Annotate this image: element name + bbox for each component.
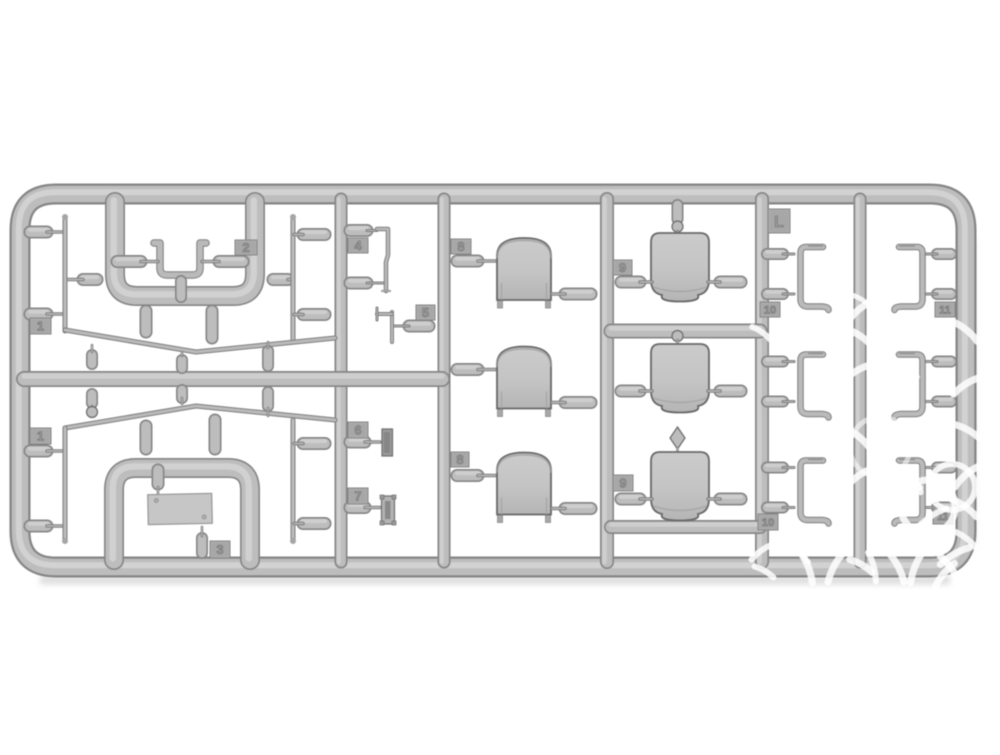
svg-text:10: 10 bbox=[764, 304, 776, 316]
svg-text:1: 1 bbox=[37, 429, 44, 444]
svg-text:8: 8 bbox=[456, 452, 463, 467]
svg-text:1: 1 bbox=[37, 319, 44, 334]
svg-text:8: 8 bbox=[457, 239, 464, 254]
svg-text:4: 4 bbox=[354, 238, 362, 253]
svg-text:9: 9 bbox=[619, 260, 626, 275]
svg-text:3: 3 bbox=[216, 542, 223, 557]
svg-text:6: 6 bbox=[354, 423, 361, 438]
svg-text:2: 2 bbox=[242, 240, 249, 255]
svg-text:7: 7 bbox=[354, 489, 361, 504]
svg-text:11: 11 bbox=[939, 304, 951, 316]
svg-text:L: L bbox=[774, 214, 784, 231]
svg-text:5: 5 bbox=[422, 305, 429, 320]
svg-text:9: 9 bbox=[619, 476, 626, 491]
svg-text:10: 10 bbox=[762, 517, 774, 529]
